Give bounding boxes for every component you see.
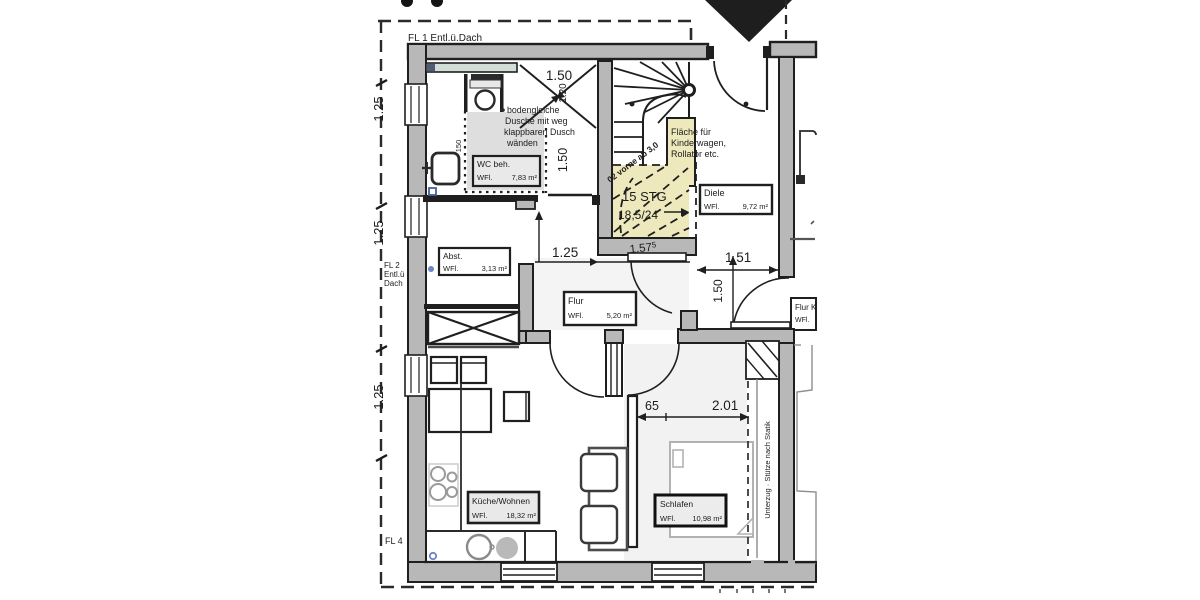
svg-text:FL 2: FL 2: [384, 261, 400, 270]
svg-text:65: 65: [645, 399, 659, 413]
svg-text:1.25: 1.25: [371, 96, 386, 121]
svg-text:klappbaren Dusch: klappbaren Dusch: [504, 127, 575, 137]
svg-text:Küche/Wohnen: Küche/Wohnen: [472, 496, 530, 506]
svg-text:1.25: 1.25: [371, 220, 386, 245]
svg-text:9,72 m²: 9,72 m²: [743, 202, 769, 211]
svg-text:WFl.: WFl.: [443, 264, 458, 273]
svg-text:1.25: 1.25: [552, 245, 578, 260]
svg-text:Kinderwagen,: Kinderwagen,: [671, 138, 726, 148]
svg-text:18,32 m²: 18,32 m²: [506, 511, 536, 520]
svg-text:Dach: Dach: [384, 279, 403, 288]
svg-text:Rollator etc.: Rollator etc.: [671, 149, 719, 159]
svg-text:1.50: 1.50: [711, 279, 725, 303]
svg-text:1.51: 1.51: [725, 250, 751, 265]
svg-text:1.50: 1.50: [546, 68, 572, 83]
svg-text:Dusche mit weg: Dusche mit weg: [505, 116, 568, 126]
svg-text:2.01: 2.01: [712, 398, 738, 413]
svg-text:WFl.: WFl.: [704, 202, 719, 211]
svg-text:7,83 m²: 7,83 m²: [512, 173, 538, 182]
svg-text:WFl.: WFl.: [795, 317, 809, 324]
svg-text:Entl.ü: Entl.ü: [384, 270, 404, 279]
svg-text:FL 4: FL 4: [385, 536, 403, 546]
svg-text:1.25: 1.25: [371, 384, 386, 409]
svg-text:1.20: 1.20: [558, 83, 569, 103]
svg-text:WFl.: WFl.: [477, 173, 492, 182]
svg-text:1.50: 1.50: [556, 148, 570, 172]
svg-text:150: 150: [454, 140, 463, 153]
svg-text:WFl.: WFl.: [660, 514, 675, 523]
svg-text:Schlafen: Schlafen: [660, 499, 693, 509]
svg-text:5,20 m²: 5,20 m²: [607, 311, 633, 320]
svg-text:15 STG: 15 STG: [622, 189, 667, 204]
svg-text:wänden: wänden: [506, 138, 538, 148]
svg-text:Flur K: Flur K: [795, 303, 817, 312]
svg-text:18,5/24: 18,5/24: [618, 208, 658, 222]
svg-text:FL 1 Entl.ü.Dach: FL 1 Entl.ü.Dach: [408, 33, 482, 44]
svg-text:WC beh.: WC beh.: [477, 159, 510, 169]
svg-text:Abst.: Abst.: [443, 251, 462, 261]
svg-text:Diele: Diele: [704, 188, 725, 198]
svg-text:WFl.: WFl.: [472, 511, 487, 520]
svg-text:10,98 m²: 10,98 m²: [692, 514, 722, 523]
svg-text:Flur: Flur: [568, 296, 584, 306]
svg-text:3,13 m²: 3,13 m²: [482, 264, 508, 273]
svg-text:bodengleiche: bodengleiche: [507, 105, 559, 115]
svg-text:WFl.: WFl.: [568, 311, 583, 320]
svg-text:Fläche für: Fläche für: [671, 127, 711, 137]
svg-text:Unterzug · Stütze nach Statik: Unterzug · Stütze nach Statik: [763, 421, 772, 519]
